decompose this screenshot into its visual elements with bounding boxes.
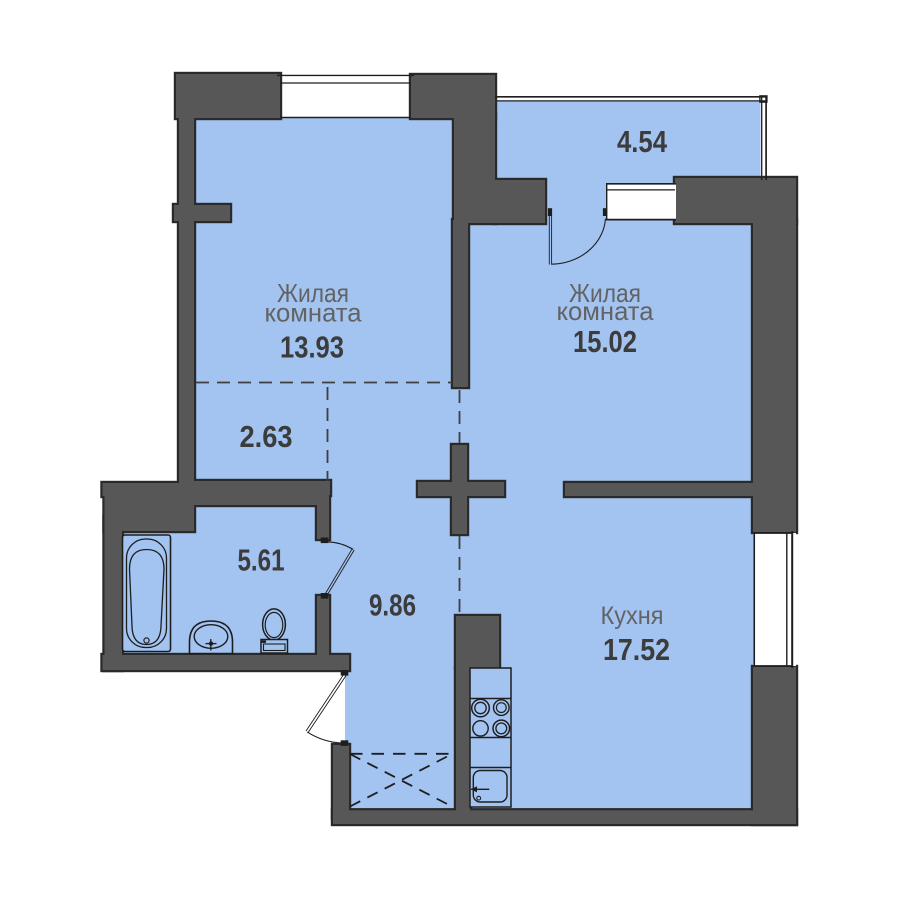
svg-text:2.63: 2.63	[240, 419, 293, 454]
svg-text:15.02: 15.02	[573, 324, 637, 359]
svg-text:5.61: 5.61	[238, 543, 285, 578]
svg-text:13.93: 13.93	[280, 330, 344, 365]
svg-text:4.54: 4.54	[617, 124, 668, 159]
svg-text:17.52: 17.52	[603, 632, 670, 667]
svg-text:Кухня: Кухня	[601, 602, 664, 630]
svg-text:комната: комната	[265, 298, 363, 328]
svg-text:9.86: 9.86	[369, 588, 416, 623]
svg-text:комната: комната	[557, 296, 655, 326]
